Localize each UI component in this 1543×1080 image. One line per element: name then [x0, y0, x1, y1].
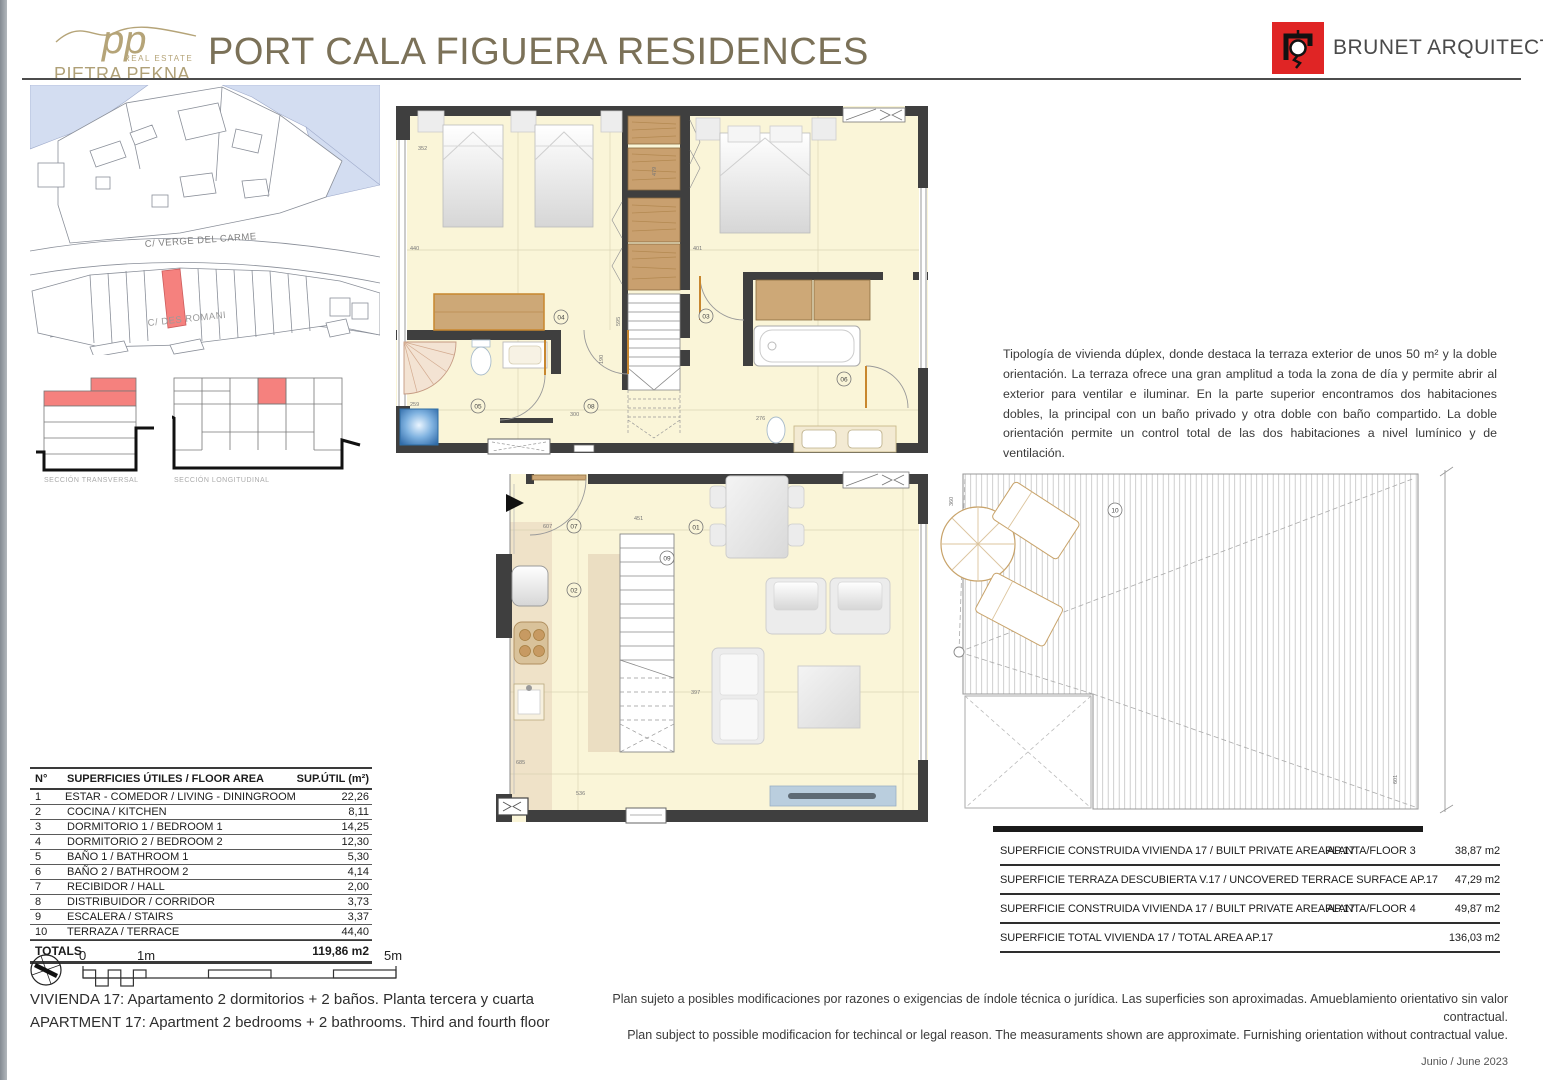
table-row: 6BAÑO 2 / BATHROOM 24,14 — [30, 865, 372, 880]
svg-text:09: 09 — [663, 556, 671, 563]
svg-text:479: 479 — [652, 167, 658, 176]
plan-sheet: pp REAL ESTATE PIETRA PEKNA PORT CALA FI… — [0, 0, 1543, 1080]
svg-text:352: 352 — [418, 146, 427, 152]
svg-text:276: 276 — [756, 416, 765, 422]
stairs — [588, 534, 674, 752]
room-label-10: 10 — [1108, 503, 1122, 517]
col-header-num: N° — [30, 773, 67, 785]
typology-description: Tipología de vivienda dúplex, donde dest… — [1003, 345, 1497, 464]
footer-disclaimer: Plan sujeto a posibles modificaciones po… — [590, 990, 1508, 1071]
kitchen-strip — [510, 522, 552, 810]
svg-text:1m: 1m — [137, 948, 155, 963]
floor-area-table: N° SUPERFICIES ÚTILES / FLOOR AREA SUP.Ú… — [30, 767, 372, 964]
entrance-door-leaf — [532, 475, 586, 480]
room-label-02: 02 — [567, 583, 581, 597]
svg-text:607: 607 — [543, 524, 552, 530]
page-edge — [0, 0, 7, 1080]
room-label-07: 07 — [567, 519, 581, 533]
brunet-logo-icon — [1272, 22, 1324, 74]
svg-text:440: 440 — [410, 246, 419, 252]
table-row: 2COCINA / KITCHEN8,11 — [30, 805, 372, 820]
dimension-label: 601 — [1393, 775, 1399, 784]
table-row: 4DORMITORIO 2 / BEDROOM 212,30 — [30, 835, 372, 850]
svg-text:397: 397 — [691, 690, 700, 696]
svg-text:05: 05 — [474, 404, 482, 411]
room-label-09: 09 — [660, 551, 674, 565]
svg-text:190: 190 — [599, 355, 605, 364]
surface-row: SUPERFICIE CONSTRUIDA VIVIENDA 17 / BUIL… — [1000, 895, 1500, 924]
svg-text:5m: 5m — [384, 948, 402, 963]
apartment-summary-en: APARTMENT 17: Apartment 2 bedrooms + 2 b… — [30, 1011, 550, 1034]
svg-text:451: 451 — [634, 516, 643, 522]
coffee-table — [798, 666, 860, 728]
svg-text:03: 03 — [702, 314, 710, 321]
lower-wall-shadow — [993, 826, 1423, 832]
section-longitudinal-label: SECCIÓN LONGITUDINAL — [174, 475, 270, 484]
apartment-summary-es: VIVIENDA 17: Apartamento 2 dormitorios +… — [30, 988, 550, 1011]
terrace-plan: 10 360 601 — [935, 462, 1525, 842]
compass-icon — [31, 955, 61, 985]
site-location-map: C/ VERGE DEL CARME C/ DES ROMANI — [30, 85, 380, 360]
svg-text:536: 536 — [576, 791, 585, 797]
svg-text:0: 0 — [79, 948, 86, 963]
table-row: 9ESCALERA / STAIRS3,37 — [30, 910, 372, 925]
pietra-pekna-logo: pp REAL ESTATE PIETRA PEKNA — [52, 6, 212, 86]
table-row: 7RECIBIDOR / HALL2,00 — [30, 880, 372, 895]
floorplan-upper-level: 352 440 479 401 300 190 259 276 595 04 0… — [388, 98, 940, 468]
room-label-01: 01 — [689, 520, 703, 534]
surface-row: SUPERFICIE TOTAL VIVIENDA 17 / TOTAL ARE… — [1000, 924, 1500, 953]
room-label-06: 06 — [837, 372, 851, 386]
kitchen-appliances — [512, 566, 548, 720]
svg-text:685: 685 — [516, 760, 525, 766]
room-label-08: 08 — [584, 399, 598, 413]
shower-skylight — [400, 409, 438, 445]
room-label-05: 05 — [471, 399, 485, 413]
svg-text:259: 259 — [410, 402, 419, 408]
table-row: 8DISTRIBUIDOR / CORRIDOR3,73 — [30, 895, 372, 910]
svg-text:300: 300 — [570, 412, 579, 418]
floorplan-lower-level: 607 451 397 685 536 07 02 01 09 — [488, 462, 938, 839]
table-header-row: N° SUPERFICIES ÚTILES / FLOOR AREA SUP.Ú… — [30, 767, 372, 790]
svg-text:07: 07 — [570, 524, 578, 531]
page-title: PORT CALA FIGUERA RESIDENCES — [208, 31, 869, 74]
col-header-value: SUP.ÚTIL (m²) — [291, 773, 372, 785]
col-header-label: SUPERFICIES ÚTILES / FLOOR AREA — [67, 773, 291, 785]
architect-name: BRUNET ARQUITECTES — [1333, 36, 1543, 60]
roof-notch — [965, 696, 1091, 808]
apartment-summary: VIVIENDA 17: Apartamento 2 dormitorios +… — [30, 988, 550, 1034]
surface-row: SUPERFICIE CONSTRUIDA VIVIENDA 17 / BUIL… — [1000, 837, 1500, 866]
guide-hub — [954, 647, 964, 657]
section-transversal-diagram: SECCIÓN TRANSVERSAL — [36, 366, 158, 493]
header-rule — [22, 78, 1521, 80]
dimension-label: 360 — [949, 497, 955, 506]
svg-text:08: 08 — [587, 404, 595, 411]
svg-text:06: 06 — [840, 377, 848, 384]
table-row: 5BAÑO 1 / BATHROOM 15,30 — [30, 850, 372, 865]
scale-bar: 0 1m 5m — [79, 948, 402, 986]
svg-text:401: 401 — [693, 246, 702, 252]
table-row: 10TERRAZA / TERRACE44,40 — [30, 925, 372, 940]
logo-name: PIETRA PEKNA — [54, 64, 190, 84]
svg-text:595: 595 — [616, 317, 622, 326]
room-label-04: 04 — [554, 310, 568, 324]
surface-row: SUPERFICIE TERRAZA DESCUBIERTA V.17 / UN… — [1000, 866, 1500, 895]
date-label: Junio / June 2023 — [590, 1053, 1508, 1071]
architect-logo-block: BRUNET ARQUITECTES — [1272, 22, 1543, 74]
svg-text:01: 01 — [692, 525, 700, 532]
tv-console — [770, 786, 896, 806]
table-row: 1ESTAR - COMEDOR / LIVING - DININGROOM22… — [30, 790, 372, 805]
room-label-03: 03 — [699, 309, 713, 323]
svg-text:10: 10 — [1111, 508, 1119, 515]
built-surface-table: SUPERFICIE CONSTRUIDA VIVIENDA 17 / BUIL… — [1000, 837, 1500, 953]
table-row: 3DORMITORIO 1 / BEDROOM 114,25 — [30, 820, 372, 835]
logo-tagline: REAL ESTATE — [124, 54, 193, 63]
svg-text:02: 02 — [570, 588, 578, 595]
section-transversal-label: SECCIÓN TRANSVERSAL — [44, 475, 139, 484]
section-longitudinal-diagram: SECCIÓN LONGITUDINAL — [172, 366, 367, 493]
disclaimer-es: Plan sujeto a posibles modificaciones po… — [590, 990, 1508, 1026]
sofa — [712, 648, 764, 744]
disclaimer-en: Plan subject to possible modificacion fo… — [590, 1026, 1508, 1044]
svg-text:04: 04 — [557, 315, 565, 322]
